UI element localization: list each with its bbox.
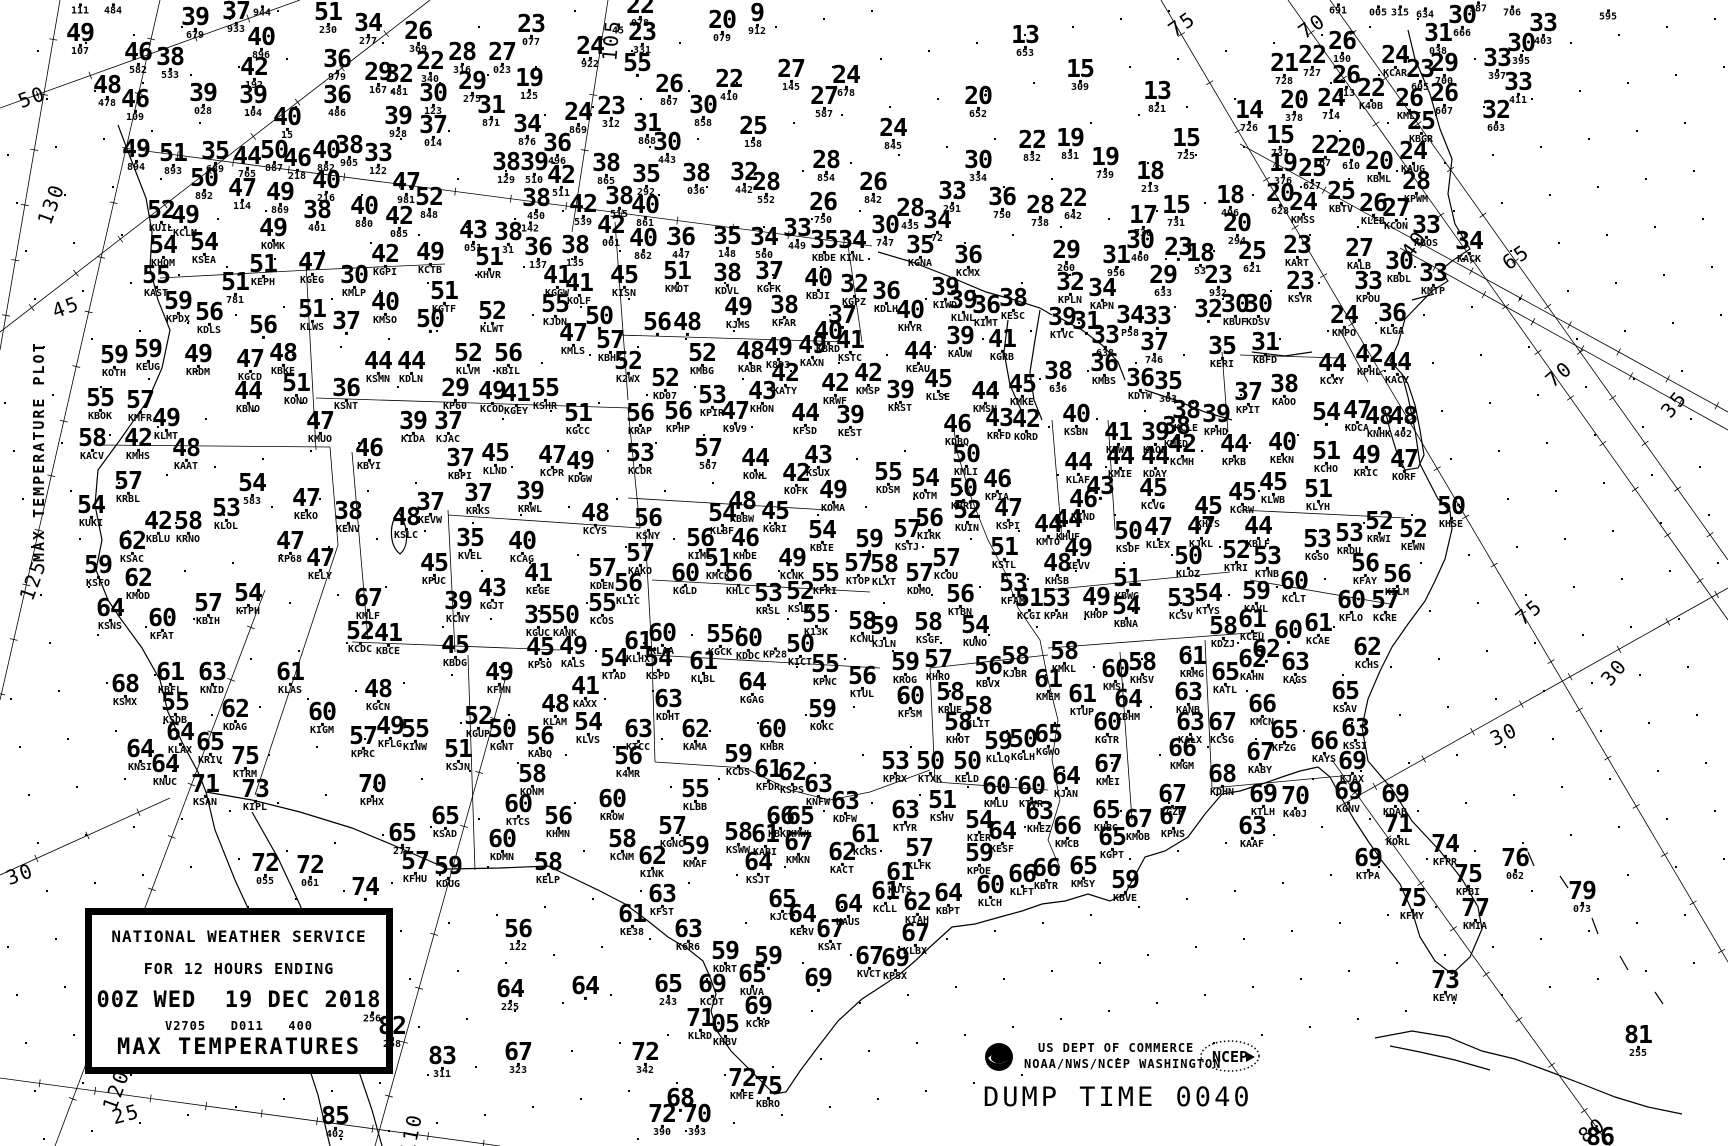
station-value: 40	[631, 194, 659, 215]
station-value: 60	[896, 685, 924, 706]
station-id: KAUW	[946, 350, 974, 360]
station-value: 31	[1251, 331, 1279, 352]
station-value: 77	[1461, 897, 1489, 918]
station: 65KSAV	[1331, 680, 1359, 715]
station-value: 20	[964, 85, 992, 106]
station-id: K4MR	[614, 770, 642, 780]
station-value: 64	[151, 753, 179, 774]
station-value: 42	[597, 214, 625, 235]
station-id: KLBL	[689, 675, 717, 685]
station: 52KMBG	[688, 342, 716, 377]
station-id: KRSL	[754, 607, 782, 617]
station-value: 81	[1624, 1024, 1652, 1045]
station-value: 39	[946, 325, 974, 346]
station-plot-layer: 4910739679379339444658238533484784610939…	[0, 0, 1728, 1146]
station: 51893	[159, 142, 187, 177]
station-value: 05	[711, 1013, 739, 1034]
station-value: 59	[724, 743, 752, 764]
station: 37014	[419, 114, 447, 149]
station-id: KSDF	[1114, 545, 1142, 555]
station-id: 634	[1416, 10, 1434, 20]
station-value: 85	[321, 1105, 349, 1126]
station: 48402	[1389, 405, 1417, 440]
station-value: 58	[518, 763, 546, 784]
station-value: 47	[306, 547, 334, 568]
station-value: 49	[376, 715, 404, 736]
station-value: 57	[126, 389, 154, 410]
station: 81255	[1624, 1024, 1652, 1059]
station-id: KGRB	[988, 353, 1016, 363]
station-value: 48	[581, 502, 609, 523]
station: 51KGTF	[430, 280, 458, 315]
station: 22832	[1018, 129, 1046, 164]
station: 42KBLU	[144, 510, 172, 545]
station-value: 24	[1399, 140, 1427, 161]
station-value: 22	[1018, 129, 1046, 150]
station: 43KRFD	[985, 407, 1013, 442]
station: 47KCPR	[538, 444, 566, 479]
station-id: KRFD	[985, 432, 1013, 442]
station-value: 79	[1568, 880, 1596, 901]
station-value: 57	[932, 547, 960, 568]
station-id: KHEZ	[1025, 825, 1053, 835]
station-id: 378	[1280, 114, 1308, 124]
station: 32	[1194, 298, 1222, 323]
station: 50KHSE	[1437, 495, 1465, 530]
station-value: 34	[1116, 304, 1144, 325]
station: 42KGPI	[371, 243, 399, 278]
station-id: KRDM	[184, 368, 212, 378]
station-id: 603	[1482, 124, 1510, 134]
station-value: 44	[1383, 351, 1411, 372]
station-id: 055	[251, 877, 279, 887]
station-id: KHSE	[1437, 520, 1465, 530]
station: 38KENV	[334, 500, 362, 535]
station: 13821	[1143, 80, 1171, 115]
station-id: KRKS	[464, 507, 492, 517]
station-id: 158	[739, 140, 767, 150]
station: 65KGPT	[1098, 826, 1126, 861]
station-id: KAOO	[1270, 398, 1298, 408]
station-id: KORD	[1012, 433, 1040, 443]
station: 48KGCN	[364, 678, 392, 713]
station-id: 036	[682, 187, 710, 197]
station-value: 56	[1383, 563, 1411, 584]
station-value: 13	[1143, 80, 1171, 101]
station-id: KELP	[534, 876, 562, 886]
station: 51KLYH	[1304, 478, 1332, 513]
station-value: 51	[1015, 587, 1043, 608]
station: 256	[363, 1010, 381, 1024]
station-value: 50	[1437, 495, 1465, 516]
station-id: 610	[1337, 162, 1365, 172]
station: 56KPHP	[664, 400, 692, 435]
station-value: 72	[631, 1041, 659, 1062]
station-value: 56	[614, 572, 642, 593]
station-value: 34	[354, 12, 382, 33]
station: 49KJMS	[724, 296, 752, 331]
station-value: 46	[121, 88, 149, 109]
station: 39KRWL	[516, 480, 544, 515]
station-id: KCNK	[778, 572, 806, 582]
station: 47KGEG	[298, 251, 326, 286]
station-value: 60	[734, 627, 762, 648]
station-value: 38	[303, 199, 331, 220]
station: 595	[1599, 8, 1617, 22]
station-id: KBNA	[1112, 620, 1140, 630]
station-id: KPNC	[811, 678, 839, 688]
station-value: 36	[1126, 367, 1154, 388]
station-value: 64	[788, 903, 816, 924]
station-id: KDLS	[195, 326, 223, 336]
station-id: KGEY	[502, 407, 530, 417]
station-id: 821	[1143, 105, 1171, 115]
station-value: 35	[632, 163, 660, 184]
station-value: 46	[355, 437, 383, 458]
station-value: 20	[1365, 150, 1393, 171]
station-value: 63	[624, 718, 652, 739]
station-value: 47	[236, 348, 264, 369]
station-id: KRIV	[196, 756, 224, 766]
station-id: 323	[504, 1066, 532, 1076]
station-id: 311	[428, 1070, 456, 1080]
station-value: 56	[724, 562, 752, 583]
station-id: KCOS	[588, 617, 616, 627]
station-value: 60	[504, 793, 532, 814]
station-id: KICT	[786, 658, 814, 668]
station-value: 45	[610, 264, 638, 285]
station-value: 42	[124, 427, 152, 448]
station: 30858	[689, 94, 717, 129]
station: 58KJBR	[1001, 645, 1029, 680]
station: 57567	[694, 437, 722, 472]
station-value: 60	[648, 622, 676, 643]
station: 64KNSI	[126, 738, 154, 773]
station-id: KMHS	[124, 452, 152, 462]
station-value: 54	[1194, 582, 1222, 603]
station-value: 64	[571, 975, 599, 996]
station-value: 23	[1204, 264, 1232, 285]
station-value: 40	[629, 227, 657, 248]
station-id: 642	[1059, 212, 1087, 222]
station-value: 15	[1066, 58, 1094, 79]
station-value: 44	[1244, 515, 1272, 536]
station-id: 714	[1317, 112, 1345, 122]
station-id: KPHL	[1355, 368, 1383, 378]
station: 51KONO	[282, 372, 310, 407]
station-value: 59	[711, 940, 739, 961]
station-value: 54	[600, 647, 628, 668]
station-id: KLAS	[276, 686, 304, 696]
station-id: KFRI	[811, 587, 839, 597]
station-id: K2WX	[614, 375, 642, 385]
station-id: KLRD	[686, 1032, 714, 1042]
station: 05KHBV	[711, 1013, 739, 1048]
station-id: KMUO	[306, 435, 334, 445]
station-value: 25	[1327, 180, 1355, 201]
station: 30KMLP	[340, 264, 368, 299]
station-id: KEUG	[134, 363, 162, 373]
station-value: 35	[201, 140, 229, 161]
station: 61KMEM	[1034, 668, 1062, 703]
station-id: KSAT	[816, 943, 844, 953]
station-id: KUIN	[953, 524, 981, 534]
station-value: 49	[416, 241, 444, 262]
station: 42KMSP	[854, 362, 882, 397]
station: 37933	[222, 0, 250, 35]
station: 56K4MR	[614, 745, 642, 780]
station: 60KLCH	[976, 874, 1004, 909]
station: 30334	[964, 149, 992, 184]
station-id: KEGE	[524, 587, 552, 597]
station-value: 63	[1025, 800, 1053, 821]
station-id: KHVR	[475, 271, 503, 281]
station-value: 69	[1334, 780, 1362, 801]
station-value: 54	[961, 614, 989, 635]
station-id: 129	[492, 176, 520, 186]
station-id: KBRO	[754, 1100, 782, 1110]
station-id: 582	[124, 66, 152, 76]
station: 23077	[517, 13, 545, 48]
station: 37KBPI	[446, 447, 474, 482]
station-value: 64	[834, 893, 862, 914]
station-id: 679	[181, 31, 209, 41]
station-id: KBDG	[441, 659, 469, 669]
station: 52KCDC	[346, 620, 374, 655]
station-value: 50	[916, 750, 944, 771]
station: 54583	[238, 472, 266, 507]
station-value: 50	[1174, 545, 1202, 566]
station-value: 49	[485, 661, 513, 682]
station-id: KDDC	[734, 652, 762, 662]
station: 76062	[1501, 847, 1529, 882]
station: 30KDSV	[1244, 293, 1272, 328]
station-value: 56	[634, 507, 662, 528]
station: 37KEVW	[416, 491, 444, 526]
station: 69KTPA	[1354, 847, 1382, 882]
station-value: 58	[78, 427, 106, 448]
station-value: 65	[654, 973, 682, 994]
station-value: 46	[124, 41, 152, 62]
station-id: KGPT	[1098, 851, 1126, 861]
station-value: 57	[905, 562, 933, 583]
station: 50KGLH	[1009, 728, 1037, 763]
station: 68KDHN	[1208, 763, 1236, 798]
station-value: 39	[181, 6, 209, 27]
station-value: 15	[1266, 124, 1294, 145]
station: 49KALS	[559, 635, 587, 670]
station: 51KCHO	[1312, 440, 1340, 475]
station: 35KGNA	[906, 234, 934, 269]
station-id: KDLN	[397, 375, 425, 385]
station: 32603	[1482, 99, 1510, 134]
station: 67KVCT	[855, 945, 883, 980]
station-value: 60	[308, 701, 336, 722]
station: 65KATL	[1211, 661, 1239, 696]
station: 38533	[156, 46, 184, 81]
station-value: 26	[809, 191, 837, 212]
station-id: 395	[1507, 57, 1535, 67]
station: 61KCRS	[851, 823, 879, 858]
station-id: KBVE	[1111, 894, 1139, 904]
station-id: KPRC	[349, 750, 377, 760]
station: 706	[1503, 4, 1521, 18]
station-value: 62	[903, 891, 931, 912]
station-id: KCHS	[1353, 661, 1381, 671]
station-id: KGTR	[1093, 736, 1121, 746]
station-value: 33	[1504, 71, 1532, 92]
station-id: KHYR	[896, 324, 924, 334]
station-id: 484	[104, 6, 122, 16]
station-id: 633	[1149, 289, 1177, 299]
station-value: 37	[464, 482, 492, 503]
station: 74	[351, 876, 379, 901]
station: 62KINK	[638, 845, 666, 880]
station: 48478	[93, 74, 121, 109]
station: 49KHOP	[1082, 586, 1110, 621]
station-id: 727	[1298, 69, 1326, 79]
station: 46KHDE	[731, 527, 759, 562]
station-value: 39	[886, 379, 914, 400]
station-value: 63	[1341, 717, 1369, 738]
station-id: KMEM	[1034, 693, 1062, 703]
station-id: 666	[1448, 29, 1476, 39]
station-id: KMSY	[1069, 880, 1097, 890]
station-id: KACV	[78, 452, 106, 462]
station-value: 36	[1090, 352, 1118, 373]
station-id: KIDA	[399, 435, 427, 445]
station-value: 65	[1034, 723, 1062, 744]
station-value: 58	[936, 681, 964, 702]
station: 22727	[1298, 44, 1326, 79]
station-id: KGTF	[430, 305, 458, 315]
station: 35KERI	[1208, 335, 1236, 370]
station: 22K40B	[1357, 77, 1385, 112]
station-value: 22	[1059, 187, 1087, 208]
station: 49KOMA	[819, 479, 847, 514]
station-id: KTUP	[1068, 708, 1096, 718]
station-id: KMTP	[1419, 287, 1447, 297]
station: 58KELP	[534, 851, 562, 886]
station-id: KBTV	[1327, 205, 1355, 215]
station-value: 38	[156, 46, 184, 67]
station-value: 54	[708, 502, 736, 523]
station-value: 53	[1042, 587, 1070, 608]
station-value: 25	[739, 115, 767, 136]
station: 634	[1416, 6, 1434, 20]
station-value: 55	[802, 603, 830, 624]
station-value: 44	[397, 350, 425, 371]
station-id: KMIA	[1461, 922, 1489, 932]
station: 54KSPD	[644, 647, 672, 682]
station-value: 36	[972, 294, 1000, 315]
station-id: KCDC	[346, 645, 374, 655]
station: 61KLAS	[276, 661, 304, 696]
station-id: KDMO	[905, 587, 933, 597]
station-value: 51	[663, 260, 691, 281]
station-id: KSMN	[364, 375, 392, 385]
station-id: KMAF	[681, 860, 709, 870]
station-value: 51	[1312, 440, 1340, 461]
station: 49KEVV	[1064, 537, 1092, 572]
station-id: 636	[1044, 385, 1072, 395]
station-value: 36	[988, 186, 1016, 207]
station: 64KJAN	[1052, 765, 1080, 800]
station-id: 652	[964, 110, 992, 120]
station-id: 67	[1311, 159, 1339, 169]
station: 43KHON	[748, 380, 776, 415]
station-value: 63	[654, 688, 682, 709]
station: 63KDHT	[654, 688, 682, 723]
station: 45KISN	[610, 264, 638, 299]
station-id: KGAG	[738, 696, 766, 706]
station-value: 19	[1091, 146, 1119, 167]
station-id: 014	[419, 139, 447, 149]
station-id: KMBS	[1090, 377, 1118, 387]
station-id: KFLO	[1337, 614, 1365, 624]
station-value: 54	[1112, 595, 1140, 616]
station: 56	[249, 314, 277, 339]
station-id: KSPI	[994, 522, 1022, 532]
station: 62KSPS	[778, 761, 806, 796]
station: 38905	[335, 134, 363, 169]
station-value: 17	[1129, 204, 1157, 225]
station: 35148	[713, 225, 741, 260]
station: 35KBDE	[810, 229, 838, 264]
station: 28738	[1026, 194, 1054, 229]
station-value: 60	[1017, 775, 1045, 796]
station-id: KIGM	[308, 726, 336, 736]
station-value: 23	[1286, 270, 1314, 291]
station-value: 38	[561, 234, 589, 255]
station: 38450	[522, 187, 550, 222]
station: 23KART	[1283, 234, 1311, 269]
station-id: KCRP	[744, 1020, 772, 1030]
station-value: 64	[166, 721, 194, 742]
station: 64KGAG	[738, 671, 766, 706]
station-value: 29	[1052, 239, 1080, 260]
station: 53KRSL	[754, 582, 782, 617]
station-value: 39	[520, 151, 548, 172]
station-id: KPAH	[1042, 612, 1070, 622]
station-value: 47	[306, 410, 334, 431]
station-value: 50	[551, 604, 579, 625]
station-value: 47	[1187, 515, 1215, 536]
station: 42085	[385, 205, 413, 240]
station-value: 58	[174, 510, 202, 531]
station-value: 30	[1126, 229, 1154, 250]
station: 47KMUO	[306, 410, 334, 445]
station-id: KGSO	[1303, 553, 1331, 563]
station-id: 393	[683, 1128, 711, 1138]
station: 65KFZG	[1270, 719, 1298, 754]
station-value: 56	[643, 311, 671, 332]
station: 52KTRI	[1222, 539, 1250, 574]
station-value: 55	[874, 461, 902, 482]
station-value: 53	[1335, 522, 1363, 543]
station-value: 61	[156, 661, 184, 682]
station-id: KAAF	[1238, 840, 1266, 850]
station: 64225	[496, 978, 524, 1013]
station: 54KUKI	[77, 494, 105, 529]
station: 35KVEL	[456, 527, 484, 562]
station: 34KACK	[1455, 230, 1483, 265]
station: 21728	[1270, 52, 1298, 87]
station-value: 28	[1026, 194, 1054, 215]
station: 58KCNM	[608, 828, 636, 863]
station-value: 65	[1211, 661, 1239, 682]
station: 41KAXX	[571, 675, 599, 710]
